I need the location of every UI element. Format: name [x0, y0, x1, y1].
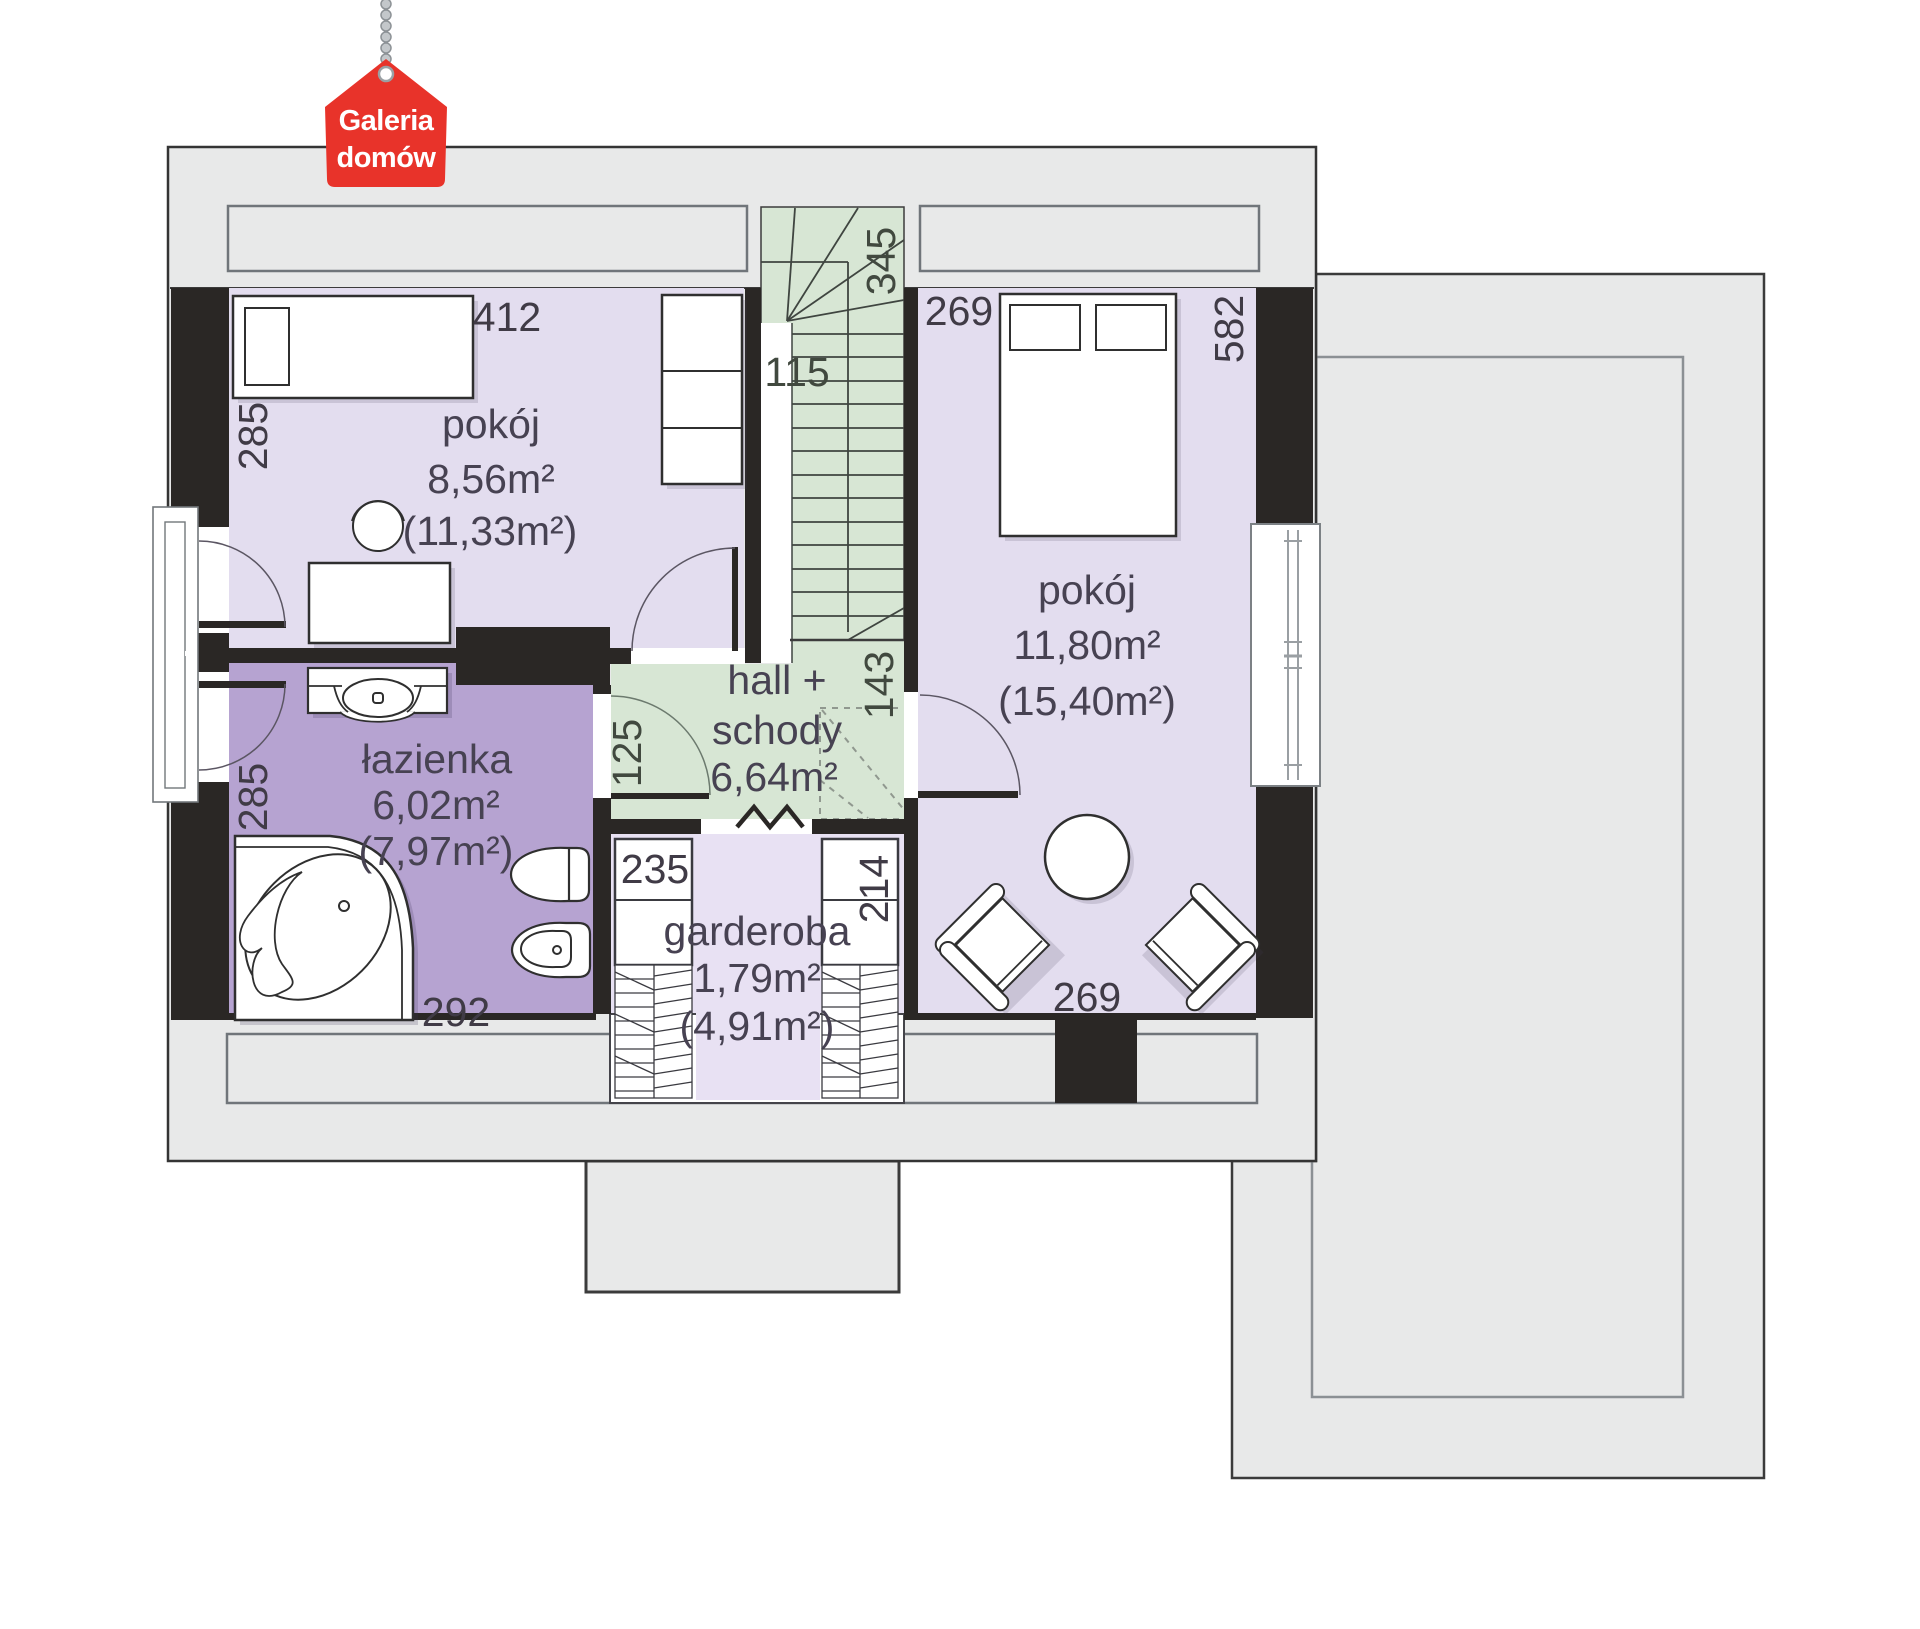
svg-text:(11,33m²): (11,33m²): [403, 508, 578, 554]
svg-text:115: 115: [764, 349, 829, 395]
svg-text:582: 582: [1206, 295, 1252, 363]
svg-text:garderoba: garderoba: [664, 908, 851, 954]
svg-text:412: 412: [473, 294, 541, 340]
svg-text:292: 292: [422, 989, 490, 1035]
svg-text:269: 269: [1053, 974, 1121, 1020]
svg-text:143: 143: [856, 651, 902, 719]
svg-text:345: 345: [858, 227, 904, 295]
svg-text:schody: schody: [712, 707, 842, 753]
svg-text:125: 125: [604, 719, 650, 787]
svg-text:pokój: pokój: [1038, 567, 1136, 613]
svg-text:(7,97m²): (7,97m²): [359, 828, 514, 874]
svg-text:235: 235: [621, 846, 689, 892]
svg-text:domów: domów: [337, 142, 437, 174]
svg-text:(4,91m²): (4,91m²): [680, 1003, 835, 1049]
svg-text:285: 285: [230, 402, 276, 470]
svg-text:6,64m²: 6,64m²: [710, 754, 838, 800]
svg-text:6,02m²: 6,02m²: [372, 782, 500, 828]
svg-text:285: 285: [230, 763, 276, 831]
svg-text:hall +: hall +: [727, 657, 826, 703]
svg-text:214: 214: [851, 855, 897, 923]
svg-text:8,56m²: 8,56m²: [427, 456, 555, 502]
svg-text:Galeria: Galeria: [339, 105, 435, 137]
svg-text:łazienka: łazienka: [362, 736, 513, 782]
svg-text:11,80m²: 11,80m²: [1013, 622, 1160, 668]
svg-text:1,79m²: 1,79m²: [693, 955, 821, 1001]
svg-text:pokój: pokój: [442, 401, 540, 447]
svg-text:(15,40m²): (15,40m²): [998, 678, 1176, 724]
svg-text:269: 269: [925, 288, 993, 334]
